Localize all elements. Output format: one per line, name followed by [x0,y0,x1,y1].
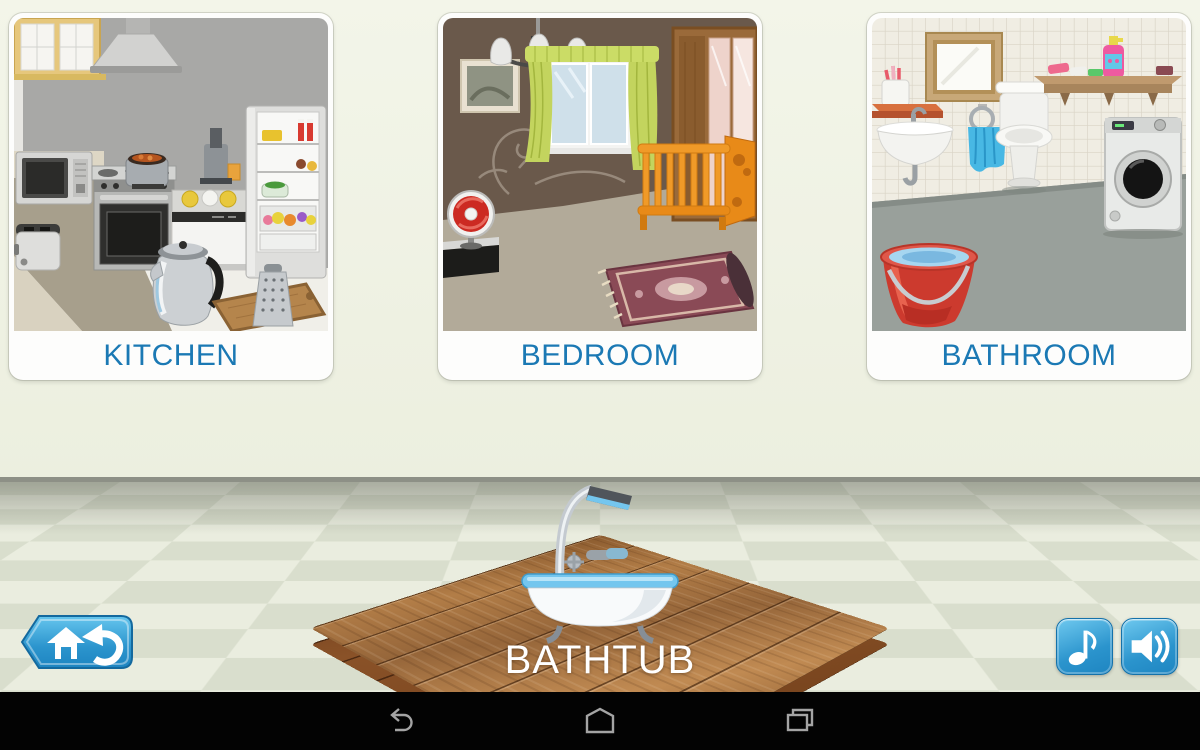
shower-head-icon [586,486,632,510]
washing-machine-icon [1103,118,1183,239]
window-icon [541,58,637,154]
music-note-icon [1057,619,1112,674]
bathroom-illustration [872,18,1186,331]
room-card-kitchen[interactable]: KITCHEN [9,13,333,380]
kitchen-illustration [14,18,328,331]
kitchen-scene [14,18,328,331]
bathroom-scene [872,18,1186,331]
android-navbar [0,692,1200,750]
nav-recents-button[interactable] [783,704,817,738]
game-screen: KITCHEN [0,0,1200,750]
room-card-bathroom[interactable]: BATHROOM [867,13,1191,380]
bedroom-illustration [443,18,757,331]
refrigerator-icon [246,106,326,278]
nav-home-button[interactable] [583,704,617,738]
room-label-bedroom: BEDROOM [438,331,762,380]
nav-home-icon [583,704,617,738]
toaster-icon [14,224,60,270]
home-back-button[interactable] [18,613,138,673]
faucet-handles-icon [564,548,628,572]
picture-frame-icon [461,60,519,112]
speaker-icon [1122,619,1177,674]
bedroom-scene [443,18,757,331]
slow-cooker-icon [126,153,168,189]
nav-back-button[interactable] [383,704,417,738]
nav-back-icon [383,704,417,738]
current-item[interactable]: BATHTUB [470,462,730,683]
mirror-icon [926,33,1002,101]
microwave-icon [16,152,92,204]
bathtub-icon [494,462,706,646]
music-button[interactable] [1056,618,1113,675]
room-card-bedroom[interactable]: BEDROOM [438,13,762,380]
room-label-bathroom: BATHROOM [867,331,1191,380]
item-label: BATHTUB [470,638,730,683]
room-label-kitchen: KITCHEN [9,331,333,380]
nav-recents-icon [783,704,817,738]
sound-button[interactable] [1121,618,1178,675]
